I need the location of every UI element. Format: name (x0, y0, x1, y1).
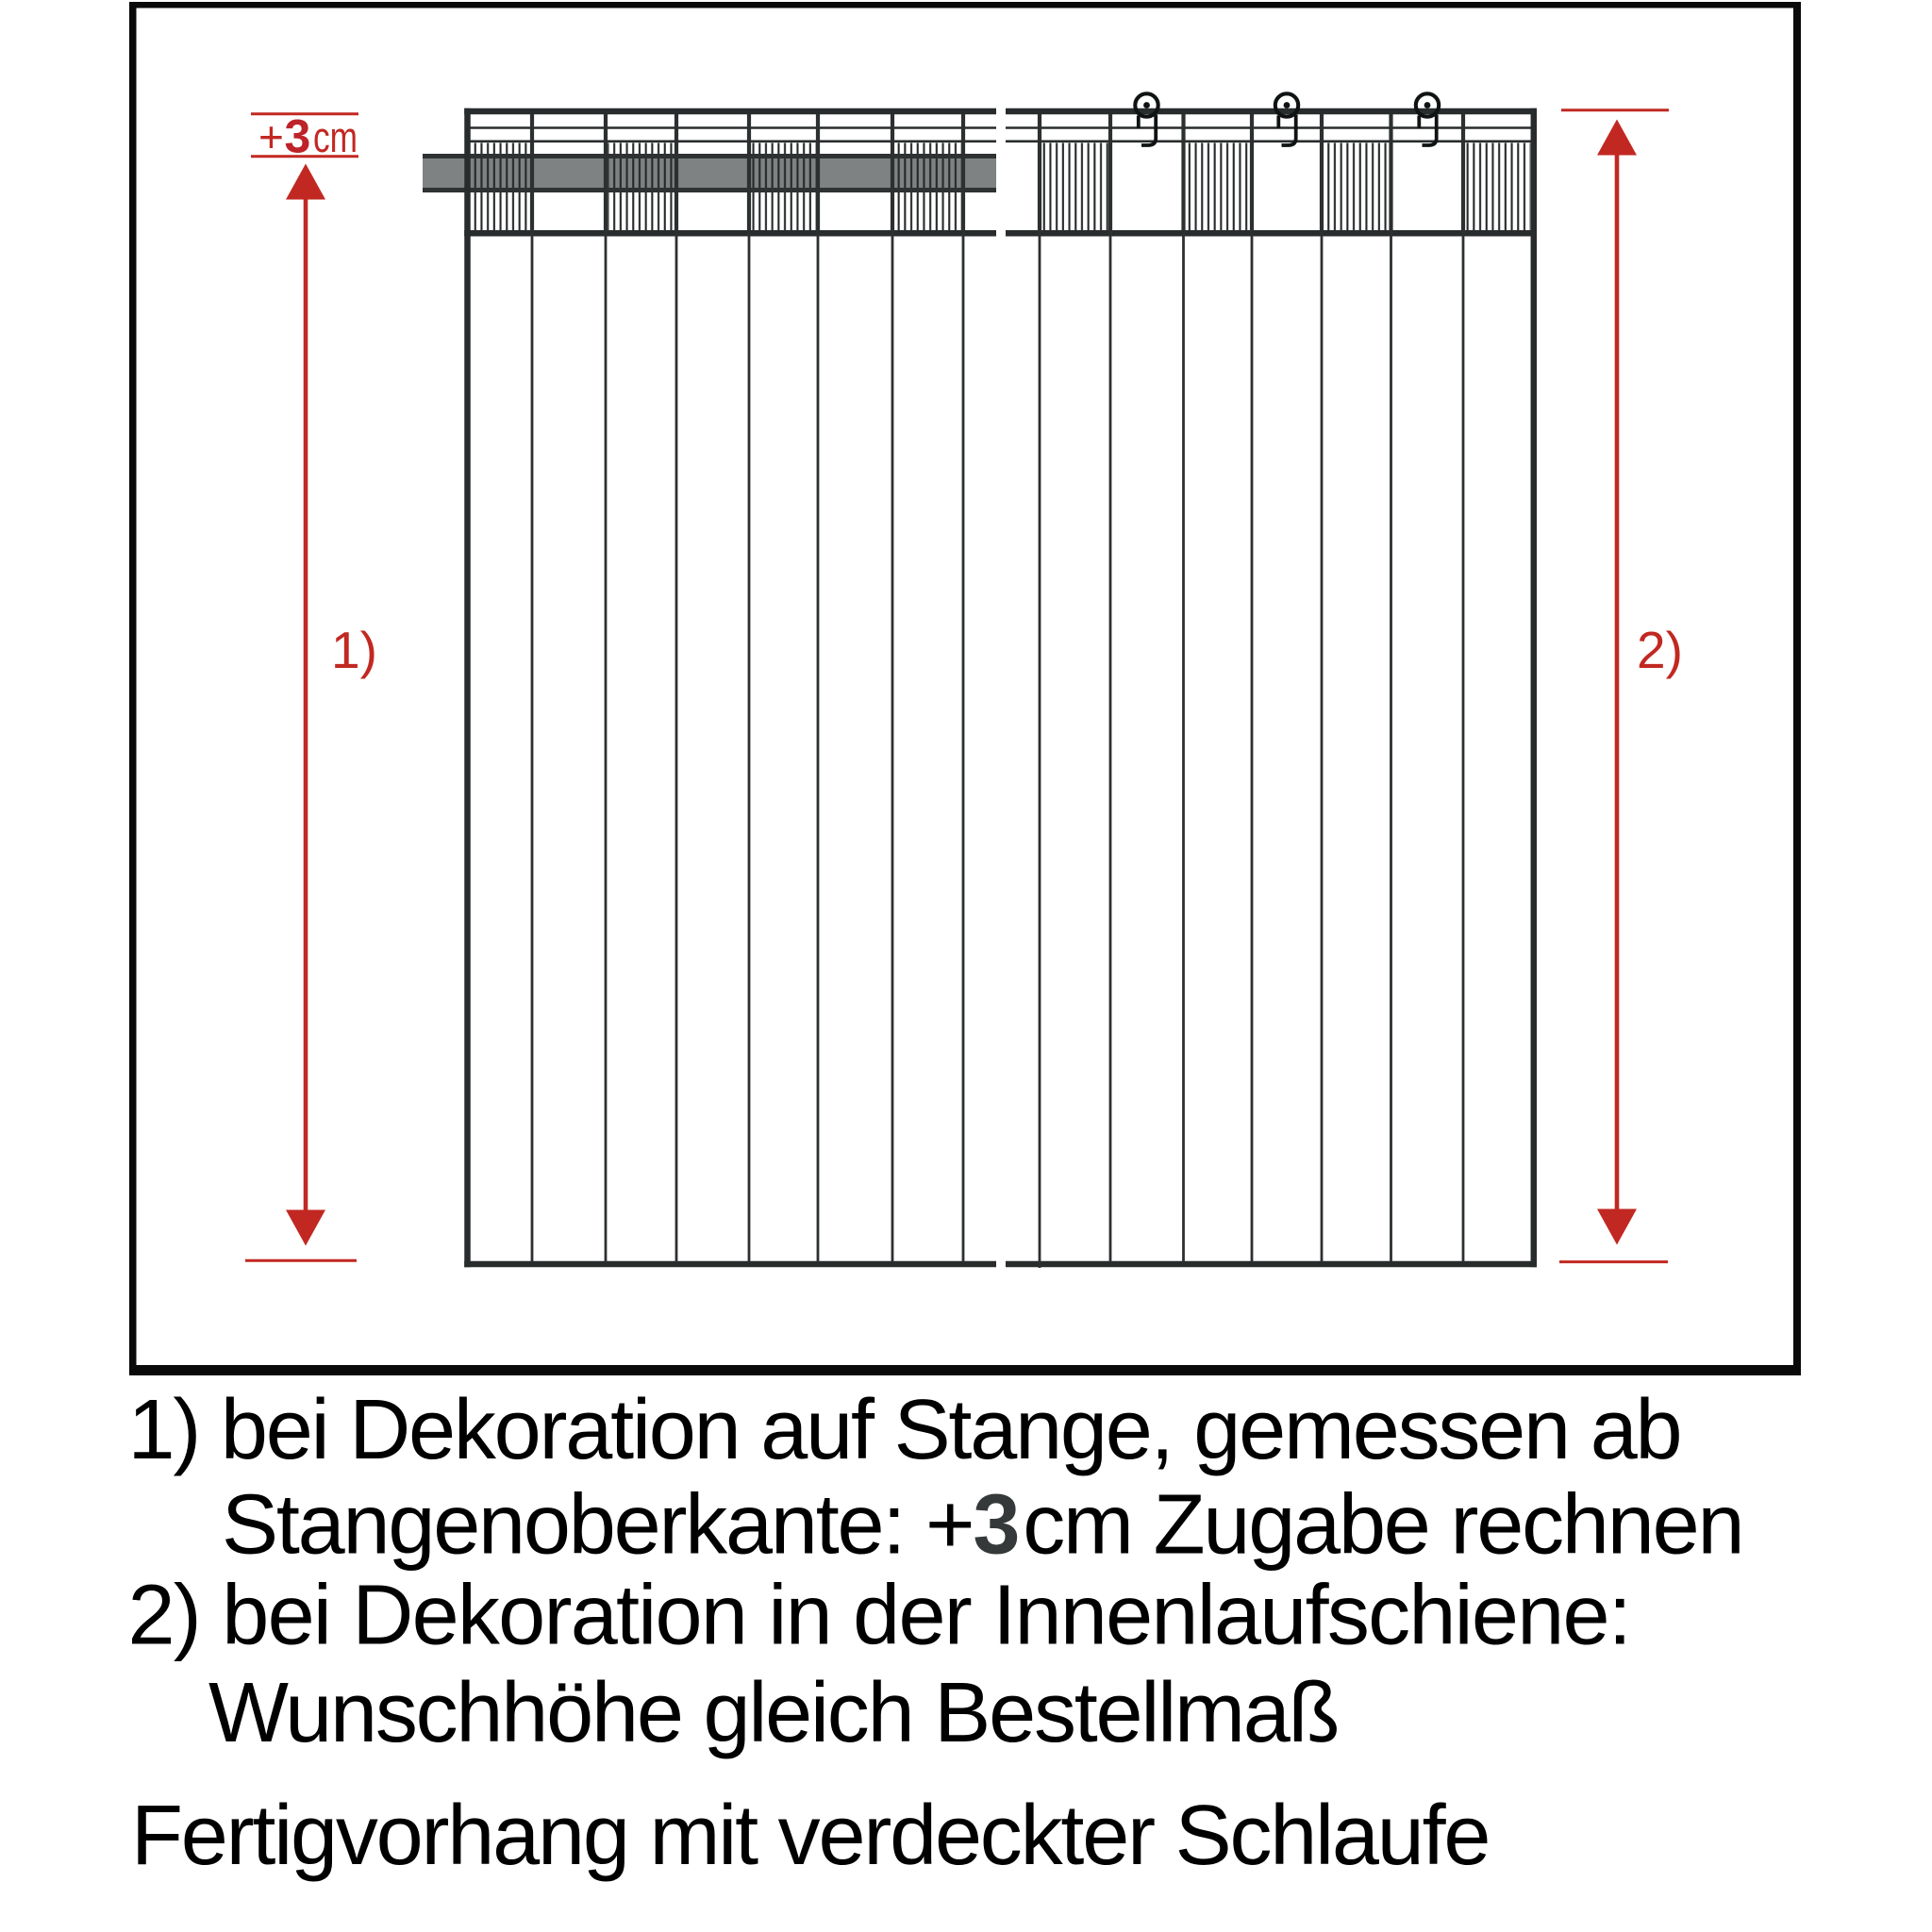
svg-text:2) bei Dekoration in der Innen: 2) bei Dekoration in der Innenlaufschien… (128, 1569, 1631, 1663)
svg-text:+: + (258, 112, 284, 161)
svg-text:1) bei Dekoration auf Stange,: 1) bei Dekoration auf Stange, gemessen a… (128, 1383, 1681, 1477)
svg-text:cm: cm (313, 113, 358, 161)
svg-text:Fertigvorhang mit verdeckter S: Fertigvorhang mit verdeckter Schlaufe (131, 1789, 1489, 1883)
svg-text:2): 2) (1637, 621, 1683, 679)
svg-text:Stangenoberkante: +3cm Zugabe: Stangenoberkante: +3cm Zugabe rechnen (222, 1478, 1742, 1573)
svg-text:1): 1) (331, 621, 377, 679)
svg-text:3: 3 (285, 110, 311, 163)
svg-text:Wunschhöhe gleich Bestellmaß: Wunschhöhe gleich Bestellmaß (208, 1666, 1338, 1760)
